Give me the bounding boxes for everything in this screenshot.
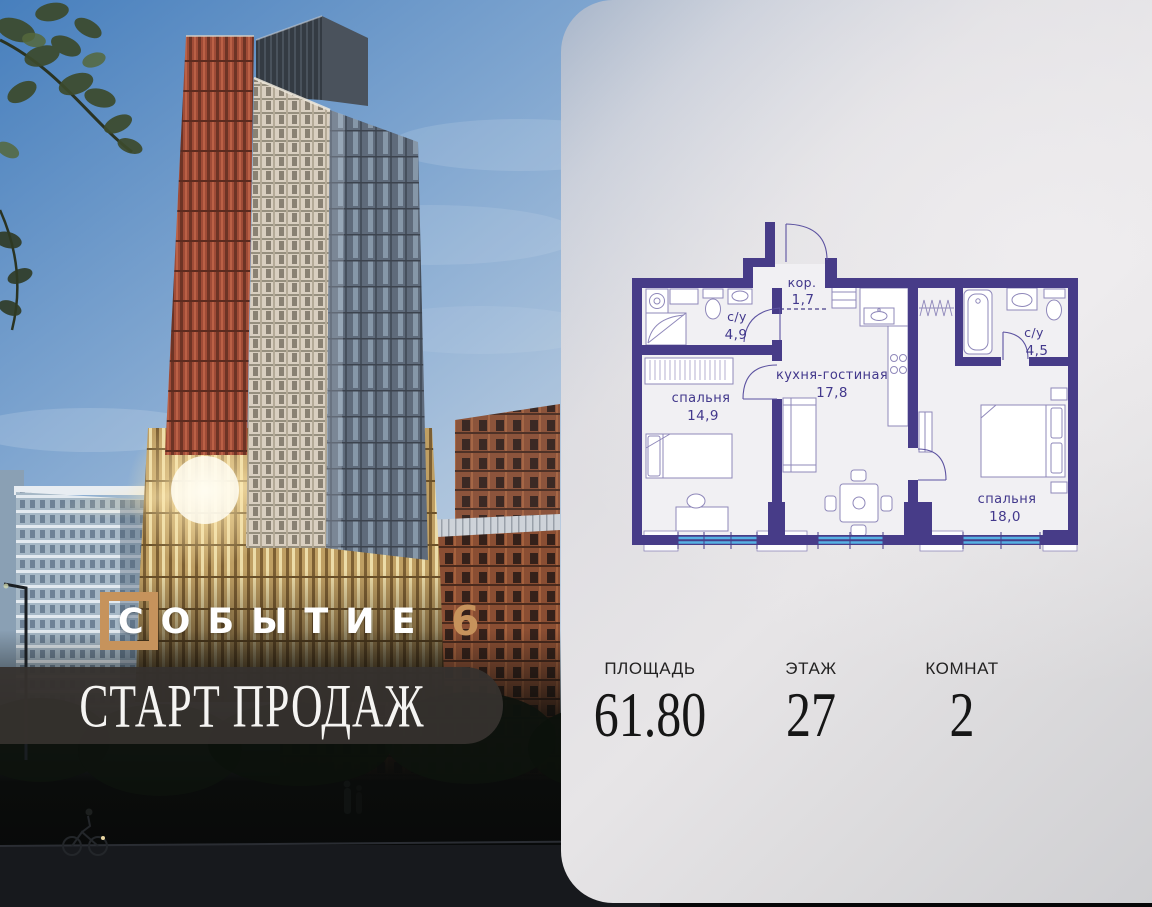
info-panel: кор. 1,7 с/у 4,9 кухня-гостиная 17,8 с/у… (561, 0, 1152, 903)
floor-plan: кор. 1,7 с/у 4,9 кухня-гостиная 17,8 с/у… (630, 212, 1080, 557)
stat-area-label: ПЛОЩАДЬ (594, 659, 707, 679)
stat-rooms: КОМНАТ 2 (925, 659, 998, 732)
stat-rooms-value: 2 (925, 682, 998, 746)
room-area-bedroom-2: 18,0 (989, 509, 1021, 525)
room-label-kitchen-living: кухня-гостиная (776, 368, 888, 383)
room-area-bathroom-1: 4,9 (725, 327, 748, 343)
floor-plan-drawing: кор. 1,7 с/у 4,9 кухня-гостиная 17,8 с/у… (630, 212, 1080, 557)
stat-area-value: 61.80 (594, 682, 707, 746)
room-label-bathroom-1: с/у (727, 309, 747, 324)
room-area-bedroom-1: 14,9 (687, 408, 719, 424)
sales-banner: СТАРТ ПРОДАЖ (0, 667, 503, 744)
stat-floor-label: ЭТАЖ (785, 659, 836, 679)
tower-cream-slab (246, 78, 330, 548)
stat-area: ПЛОЩАДЬ 61.80 (594, 659, 707, 732)
room-label-bedroom-1: спальня (672, 391, 731, 406)
room-area-bathroom-2: 4,5 (1026, 343, 1049, 359)
stat-floor-value: 27 (785, 682, 836, 746)
room-label-bedroom-2: спальня (978, 492, 1037, 507)
stat-floor: ЭТАЖ 27 (785, 659, 836, 732)
stat-rooms-label: КОМНАТ (925, 659, 998, 679)
room-label-corridor: кор. (788, 275, 817, 290)
room-area-corridor: 1,7 (792, 292, 815, 308)
sales-banner-text: СТАРТ ПРОДАЖ (79, 670, 424, 741)
promo-card: СОБЫТИЕ 6 СТАРТ ПРОДАЖ (0, 0, 1152, 907)
room-area-kitchen-living: 17,8 (816, 385, 848, 401)
room-label-bathroom-2: с/у (1024, 325, 1044, 340)
